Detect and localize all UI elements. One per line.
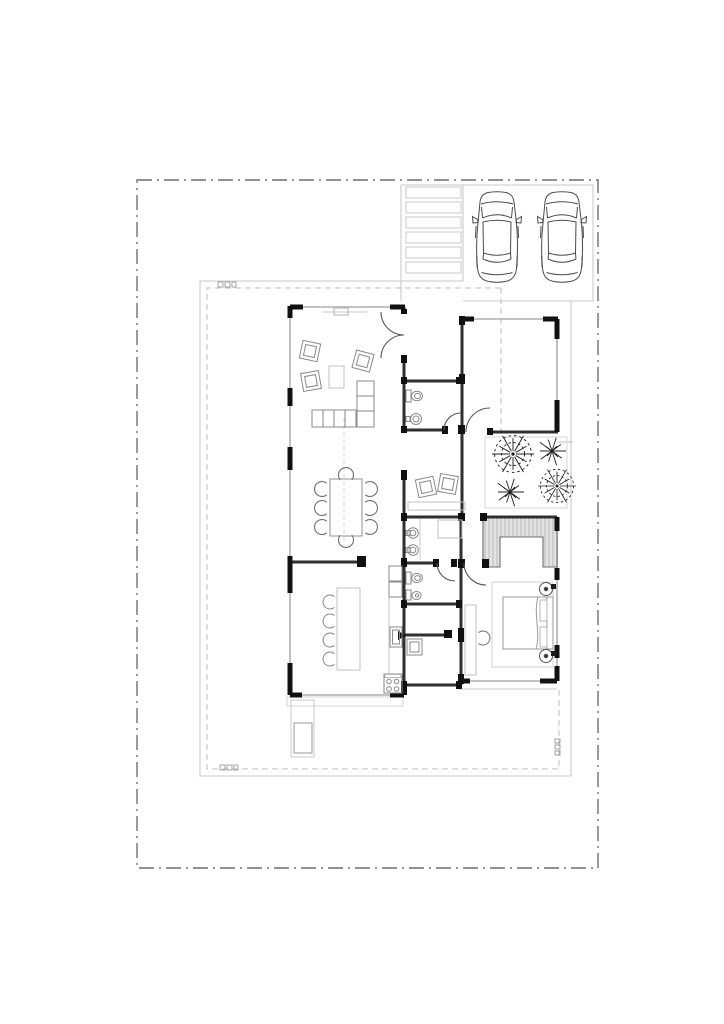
armchair [352, 350, 374, 372]
chair [479, 631, 490, 645]
floor-plan-drawing [0, 0, 724, 1024]
wardrobe [483, 517, 557, 567]
tree-palm [498, 479, 524, 507]
stove [384, 674, 402, 693]
bar-stool [323, 595, 334, 609]
tree-round [538, 469, 576, 502]
dining-chair [315, 501, 327, 516]
armchair [438, 474, 459, 495]
bathroom-middle-fixtures [406, 520, 462, 555]
bar-stool [323, 633, 334, 647]
terrace-planter [291, 700, 314, 757]
plot-outline [200, 185, 593, 776]
toilet [406, 572, 422, 584]
kitchen-fixtures [323, 566, 402, 693]
toilet [406, 390, 423, 402]
laundry-fixtures [407, 639, 422, 655]
dining-set [315, 468, 378, 548]
dining-chair [339, 535, 354, 547]
parked-cars [473, 192, 587, 283]
dining-chair [315, 520, 327, 535]
car-right [538, 192, 587, 283]
bathroom-top-fixtures [406, 390, 423, 425]
side-table [329, 366, 344, 388]
dining-chair [365, 482, 377, 497]
bar-stool [323, 652, 334, 666]
wash-basin [406, 545, 418, 556]
washing-machine [407, 639, 422, 655]
dining-chair [315, 482, 327, 497]
courtyard-trees [492, 436, 576, 507]
floor-plan-canvas [0, 0, 724, 1024]
study-furniture [408, 474, 465, 510]
wash-basin [406, 528, 418, 539]
entry-double-door-leaf-bottom [381, 335, 404, 358]
nightstand-lamp [540, 650, 557, 663]
nightstand-lamp [540, 583, 557, 596]
bidet [406, 590, 421, 600]
dining-chair [365, 520, 377, 535]
living-room-furniture [299, 340, 374, 427]
wc-fixtures [406, 572, 422, 600]
dresser [465, 605, 476, 675]
walkway-steps [406, 187, 461, 273]
bar-stool [323, 614, 334, 628]
entry-double-door-leaf-top [381, 312, 404, 335]
dining-chair [365, 501, 377, 516]
bed [503, 597, 553, 649]
dining-chair [339, 468, 354, 480]
wash-basin [406, 414, 422, 425]
kitchen-island [337, 588, 360, 670]
bedroom-furniture [465, 582, 556, 675]
armchair [301, 371, 322, 392]
door-swings [381, 312, 490, 585]
armchair [299, 340, 320, 361]
tree-round [492, 436, 534, 473]
dining-table [330, 479, 362, 536]
desk [408, 502, 465, 510]
bath-cabinet [438, 520, 462, 538]
kitchen-cabinet [389, 582, 402, 597]
armchair [415, 476, 436, 497]
car-left [473, 192, 522, 283]
fridge [389, 566, 402, 581]
garage-courtyard-door [466, 408, 490, 432]
